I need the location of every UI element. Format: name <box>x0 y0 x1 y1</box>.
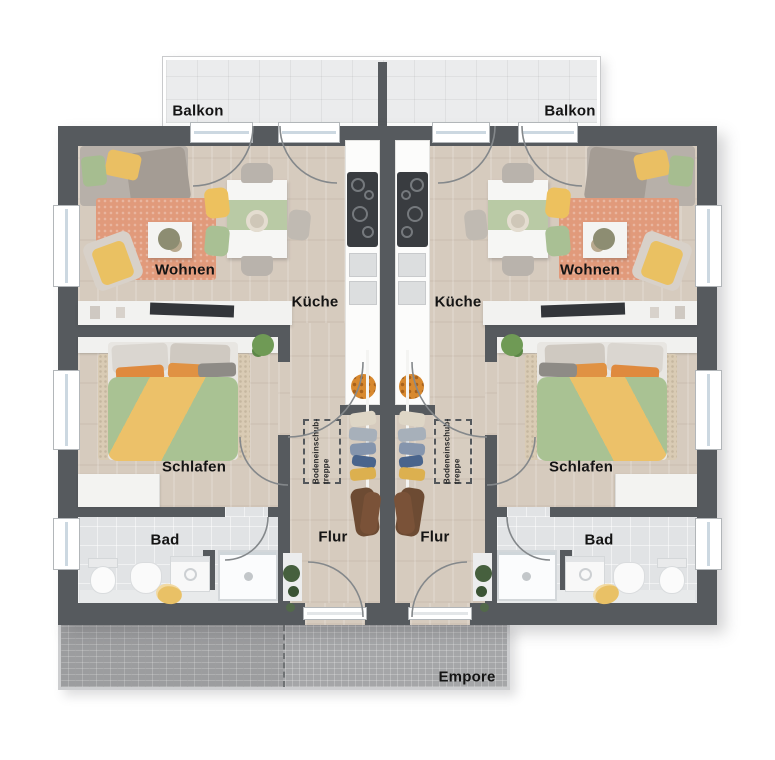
entry-plant-right <box>475 565 492 582</box>
floor-plan: Balkon Balkon Empore <box>0 0 775 760</box>
bedroom-plant-right <box>501 334 523 356</box>
entry-door-right <box>408 607 472 620</box>
washing-machine-door-right <box>579 568 592 581</box>
dining-chair-east1-right <box>544 187 571 219</box>
bedroom-plant-left <box>252 334 274 356</box>
coat-item3-left <box>350 442 377 456</box>
coat-item2-left <box>348 427 377 442</box>
gallery-deck-shaded-half <box>61 625 283 687</box>
attic-stairs-box-left: Bodeneinschub- treppe <box>303 419 341 484</box>
dining-chair-west1-left <box>203 187 230 219</box>
attic-stairs-label-line2-right: treppe <box>453 419 463 484</box>
attic-stairs-box-right: Bodeneinschub- treppe <box>434 419 472 484</box>
gallery-divider-line <box>283 625 285 687</box>
sideboard-deco1-left <box>90 306 100 319</box>
attic-stairs-label-line2-left: treppe <box>322 419 332 484</box>
dining-chair-east-left <box>286 209 311 241</box>
coat-item2-right <box>397 427 426 442</box>
bedroom-door-opening-left <box>278 362 290 435</box>
living-label-right: Wohnen <box>560 262 620 279</box>
sideboard-deco1-right <box>675 306 685 319</box>
toilet-icon-right <box>659 566 685 594</box>
sofa-pillow-green-left <box>80 155 107 187</box>
cooktop-left <box>347 172 378 247</box>
balcony-divider-wall <box>378 62 387 126</box>
hall-label-right: Flur <box>420 529 449 546</box>
kitchen-sink2-left <box>349 281 377 305</box>
bath-label-right: Bad <box>585 532 614 549</box>
fruit-bowl-right <box>399 374 424 399</box>
sofa-pillow-green-right <box>667 155 694 187</box>
balcony-left-label: Balkon <box>172 103 223 120</box>
bath-label-left: Bad <box>151 532 180 549</box>
table-flowers-left <box>246 210 268 232</box>
kitchen-sink2-right <box>398 281 426 305</box>
living-window-right <box>695 205 722 287</box>
wardrobe-left <box>78 474 160 507</box>
dining-chair-west-right <box>463 209 488 241</box>
coat-item5-right <box>398 467 425 482</box>
bed-duvet-left <box>108 377 238 461</box>
dining-chair-north-left <box>241 163 273 183</box>
hall-label-left: Flur <box>318 529 347 546</box>
balcony-door-window-right2 <box>518 122 578 143</box>
dining-chair-south-left <box>241 256 273 276</box>
dining-chair-east2-right <box>545 225 572 257</box>
bath-window-left <box>53 518 80 570</box>
attic-stairs-label-line1-right: Bodeneinschub- <box>443 419 453 484</box>
dining-chair-south-right <box>502 256 534 276</box>
balcony-right-label: Balkon <box>544 103 595 120</box>
bed-duvet-right <box>537 377 667 461</box>
living-label-left: Wohnen <box>155 262 215 279</box>
kitchen-sink-right <box>398 253 426 277</box>
kitchen-sink-left <box>349 253 377 277</box>
cooktop-right <box>397 172 428 247</box>
shower-drain-right <box>522 572 531 581</box>
dining-chair-north-right <box>502 163 534 183</box>
wardrobe-right <box>615 474 697 507</box>
bedroom-label-left: Schlafen <box>162 459 226 476</box>
fruit-bowl-left <box>351 374 376 399</box>
bath-door-opening-right <box>507 507 550 517</box>
bedroom-label-right: Schlafen <box>549 459 613 476</box>
shower-drain-left <box>244 572 253 581</box>
washing-machine-door-left <box>184 568 197 581</box>
entry-plant-left <box>283 565 300 582</box>
toilet-icon-left <box>90 566 116 594</box>
bath-door-opening-left <box>225 507 268 517</box>
bed-accent-pillow3-left <box>198 362 236 377</box>
coat-item3-right <box>399 442 426 456</box>
bedroom-window-right <box>695 370 722 450</box>
kitchen-label-left: Küche <box>292 294 339 311</box>
sideboard-deco2-right <box>650 307 659 318</box>
coffee-table-plant-right <box>593 228 615 250</box>
table-flowers-right <box>507 210 529 232</box>
balcony-door-window-left2 <box>278 122 340 143</box>
kitchen-label-right: Küche <box>435 294 482 311</box>
bedroom-window-left <box>53 370 80 450</box>
bed-accent-pillow3-right <box>539 362 577 377</box>
gallery-label: Empore <box>438 669 495 686</box>
attic-stairs-label-line1-left: Bodeneinschub- <box>312 419 322 484</box>
entry-door-left <box>303 607 367 620</box>
bath-window-right <box>695 518 722 570</box>
living-window-left <box>53 205 80 287</box>
bedroom-door-opening-right <box>485 362 497 435</box>
sideboard-deco2-left <box>116 307 125 318</box>
coffee-table-plant-left <box>158 228 180 250</box>
dining-chair-west2-left <box>204 225 231 257</box>
balcony-door-window-left1 <box>190 122 253 143</box>
balcony-door-window-right1 <box>432 122 490 143</box>
